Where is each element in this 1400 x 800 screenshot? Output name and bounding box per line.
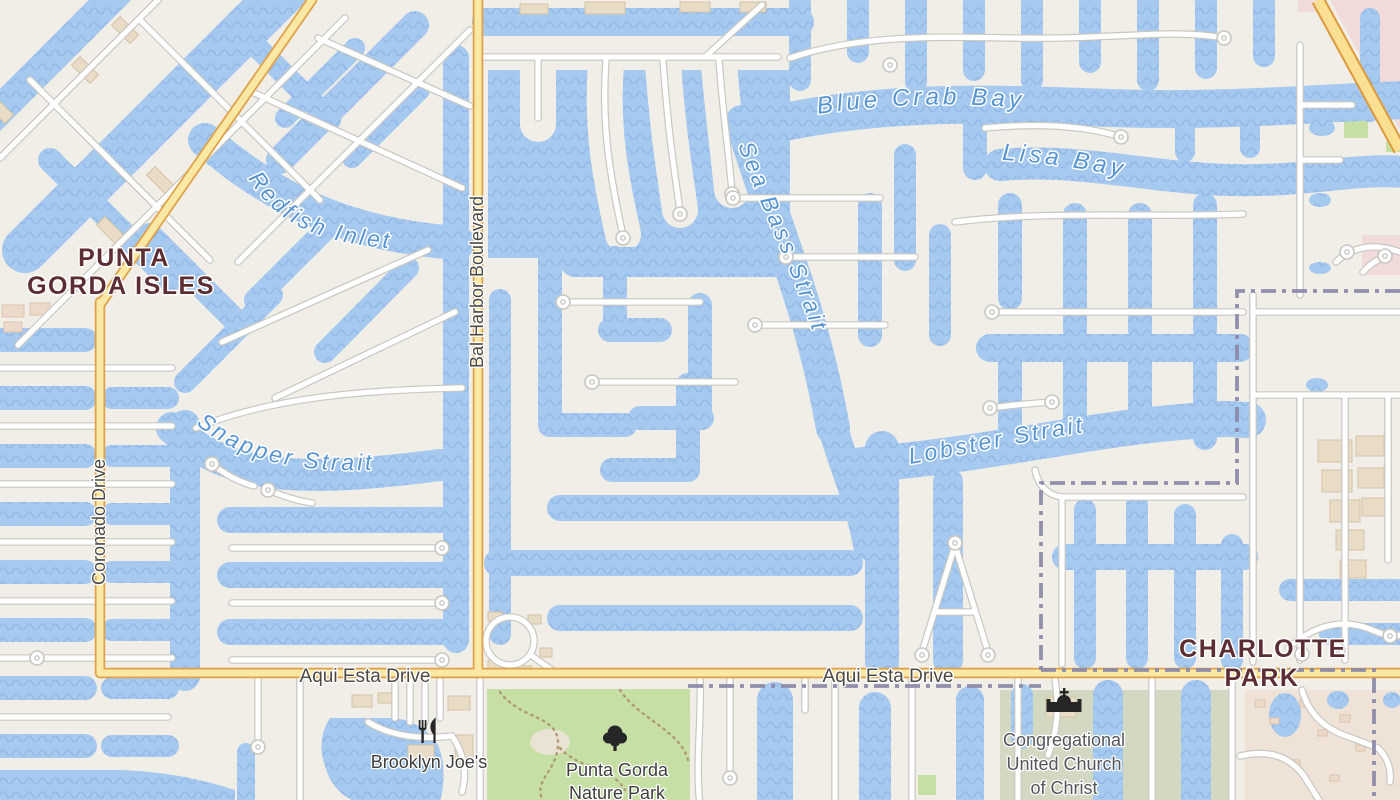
label-charlotte-park-1: CHARLOTTE <box>1179 635 1347 663</box>
map-tiles: Blue Crab Bay Lisa Bay Redfish Inlet Sea… <box>0 0 1400 800</box>
label-punta-gorda-isles-2: GORDA ISLES <box>27 272 215 300</box>
label-aqui-esta-drive-west: Aqui Esta Drive <box>300 666 431 687</box>
label-nature-park-1: Punta Gorda <box>566 760 669 780</box>
label-aqui-esta-drive-east: Aqui Esta Drive <box>823 666 954 687</box>
label-church-3: of Christ <box>1030 778 1097 798</box>
label-church-1: Congregational <box>1003 730 1125 750</box>
label-coronado-drive: Coronado Drive <box>89 459 109 585</box>
label-punta-gorda-isles-1: PUNTA <box>78 244 170 272</box>
label-nature-park-2: Nature Park <box>569 783 666 800</box>
map-canvas[interactable]: Blue Crab Bay Lisa Bay Redfish Inlet Sea… <box>0 0 1400 800</box>
label-bal-harbor-boulevard: Bal Harbor Boulevard <box>467 196 487 368</box>
label-church-2: United Church <box>1006 754 1121 774</box>
label-charlotte-park-2: PARK <box>1225 664 1300 692</box>
label-brooklyn-joes: Brooklyn Joe's <box>371 752 488 772</box>
